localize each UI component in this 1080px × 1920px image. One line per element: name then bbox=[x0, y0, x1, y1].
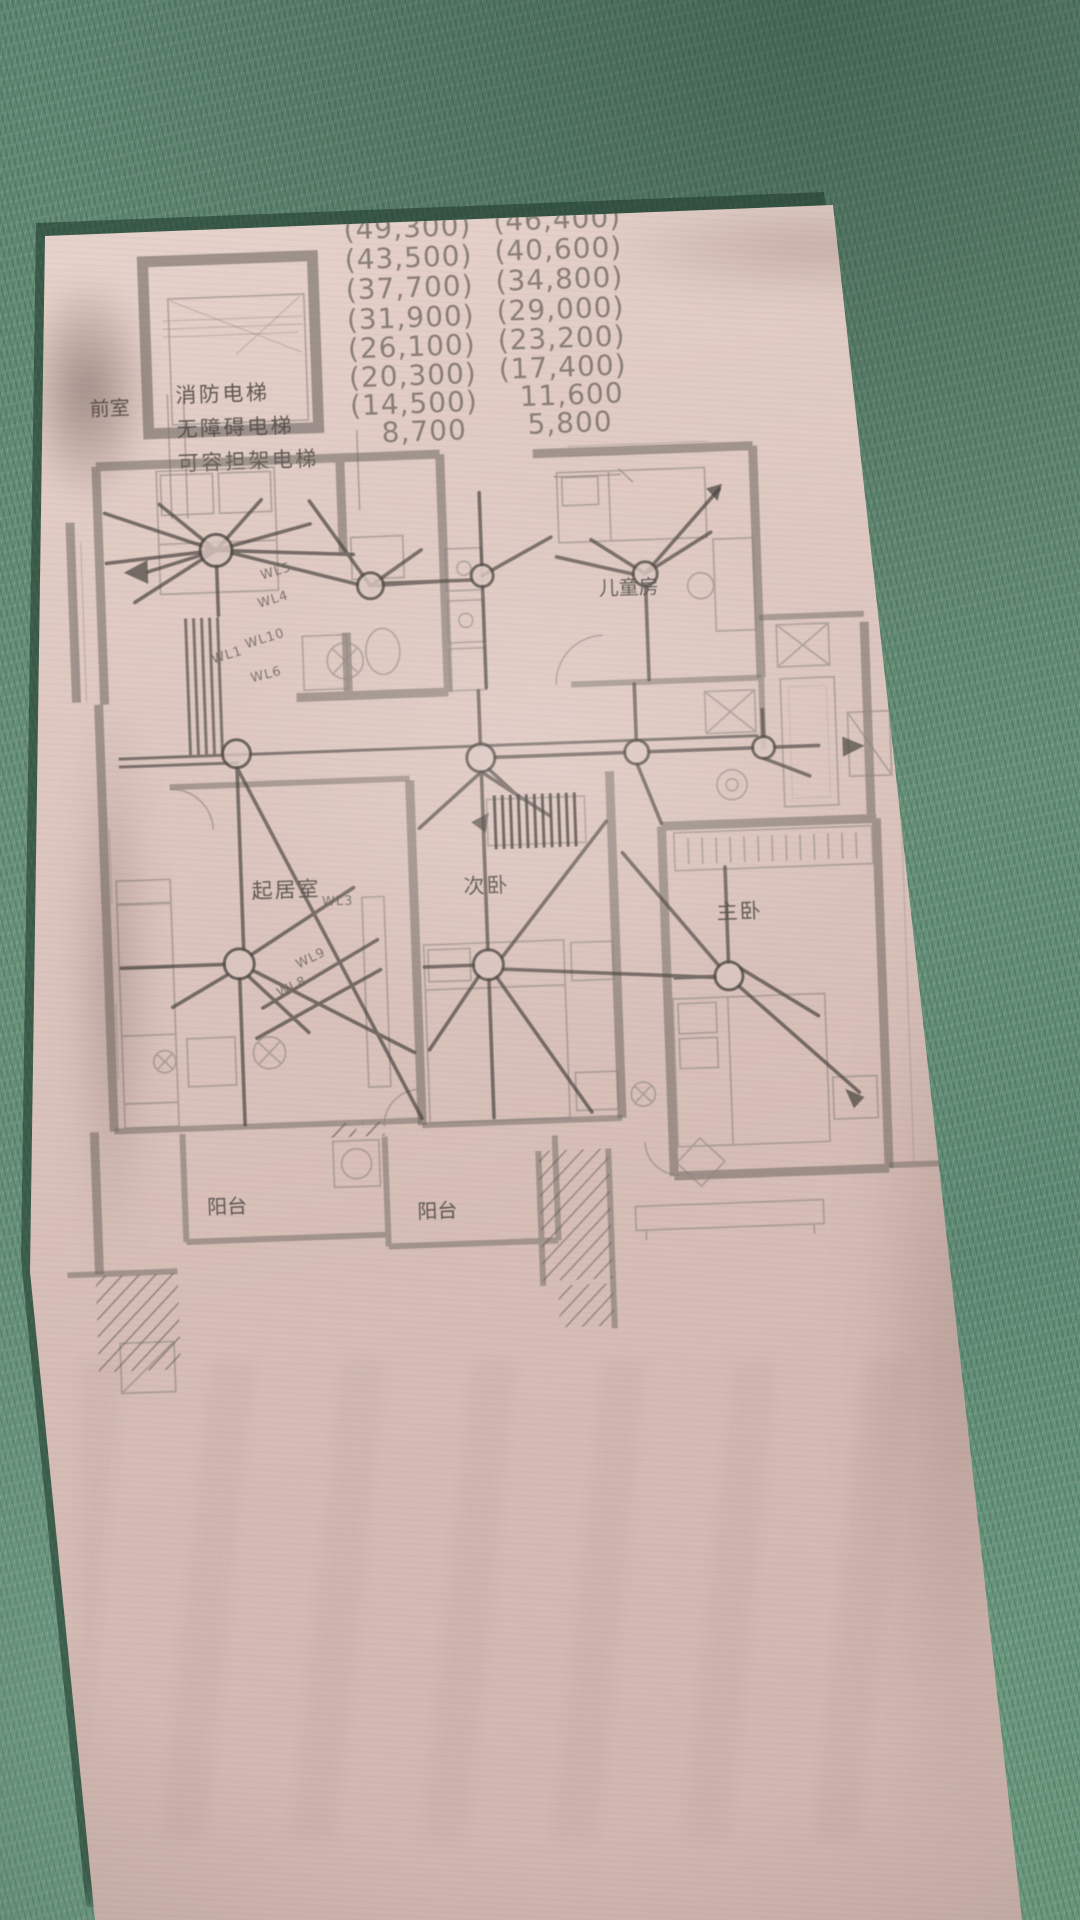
furniture-layer bbox=[88, 445, 913, 1393]
elevator-label-fire: 消防电梯 bbox=[175, 381, 270, 407]
photo-scene: 消防电梯 无障碍电梯 可容担架电梯 前室 (49,300) (46,400) (… bbox=[0, 0, 1080, 1920]
room-label-master-bedroom: 主卧 bbox=[716, 900, 763, 925]
floor-levels-table: (49,300) (46,400) (43,500) (40,600) (37,… bbox=[343, 200, 629, 450]
circuit-label-wl5: WL5 bbox=[259, 560, 293, 584]
circuit-label-wl6: WL6 bbox=[249, 664, 283, 686]
room-label-children: 儿童房 bbox=[598, 575, 659, 600]
ceiling-light-icon bbox=[139, 632, 656, 1124]
radiator-symbol bbox=[486, 792, 586, 850]
circuit-label-wl10: WL10 bbox=[243, 626, 286, 652]
room-label-living: 起居室 bbox=[251, 878, 321, 904]
circuit-label-wl3: WL3 bbox=[322, 894, 354, 910]
level-value: 8,700 bbox=[381, 413, 467, 449]
level-value: 5,800 bbox=[527, 405, 613, 441]
room-label-balcony-center: 阳台 bbox=[417, 1199, 458, 1223]
junction-node bbox=[199, 514, 783, 1008]
room-label-balcony-left: 阳台 bbox=[207, 1195, 248, 1219]
elevator-shaft: 消防电梯 无障碍电梯 可容担架电梯 bbox=[142, 256, 321, 520]
circuit-label-wl1: WL1 bbox=[210, 644, 244, 668]
room-label-second-bedroom: 次卧 bbox=[463, 874, 510, 899]
room-label-vestibule: 前室 bbox=[89, 396, 130, 420]
elevator-label-accessible: 无障碍电梯 bbox=[176, 414, 294, 441]
circuit-label-wl9: WL9 bbox=[294, 945, 329, 972]
direction-arrow-icon bbox=[121, 479, 878, 1134]
